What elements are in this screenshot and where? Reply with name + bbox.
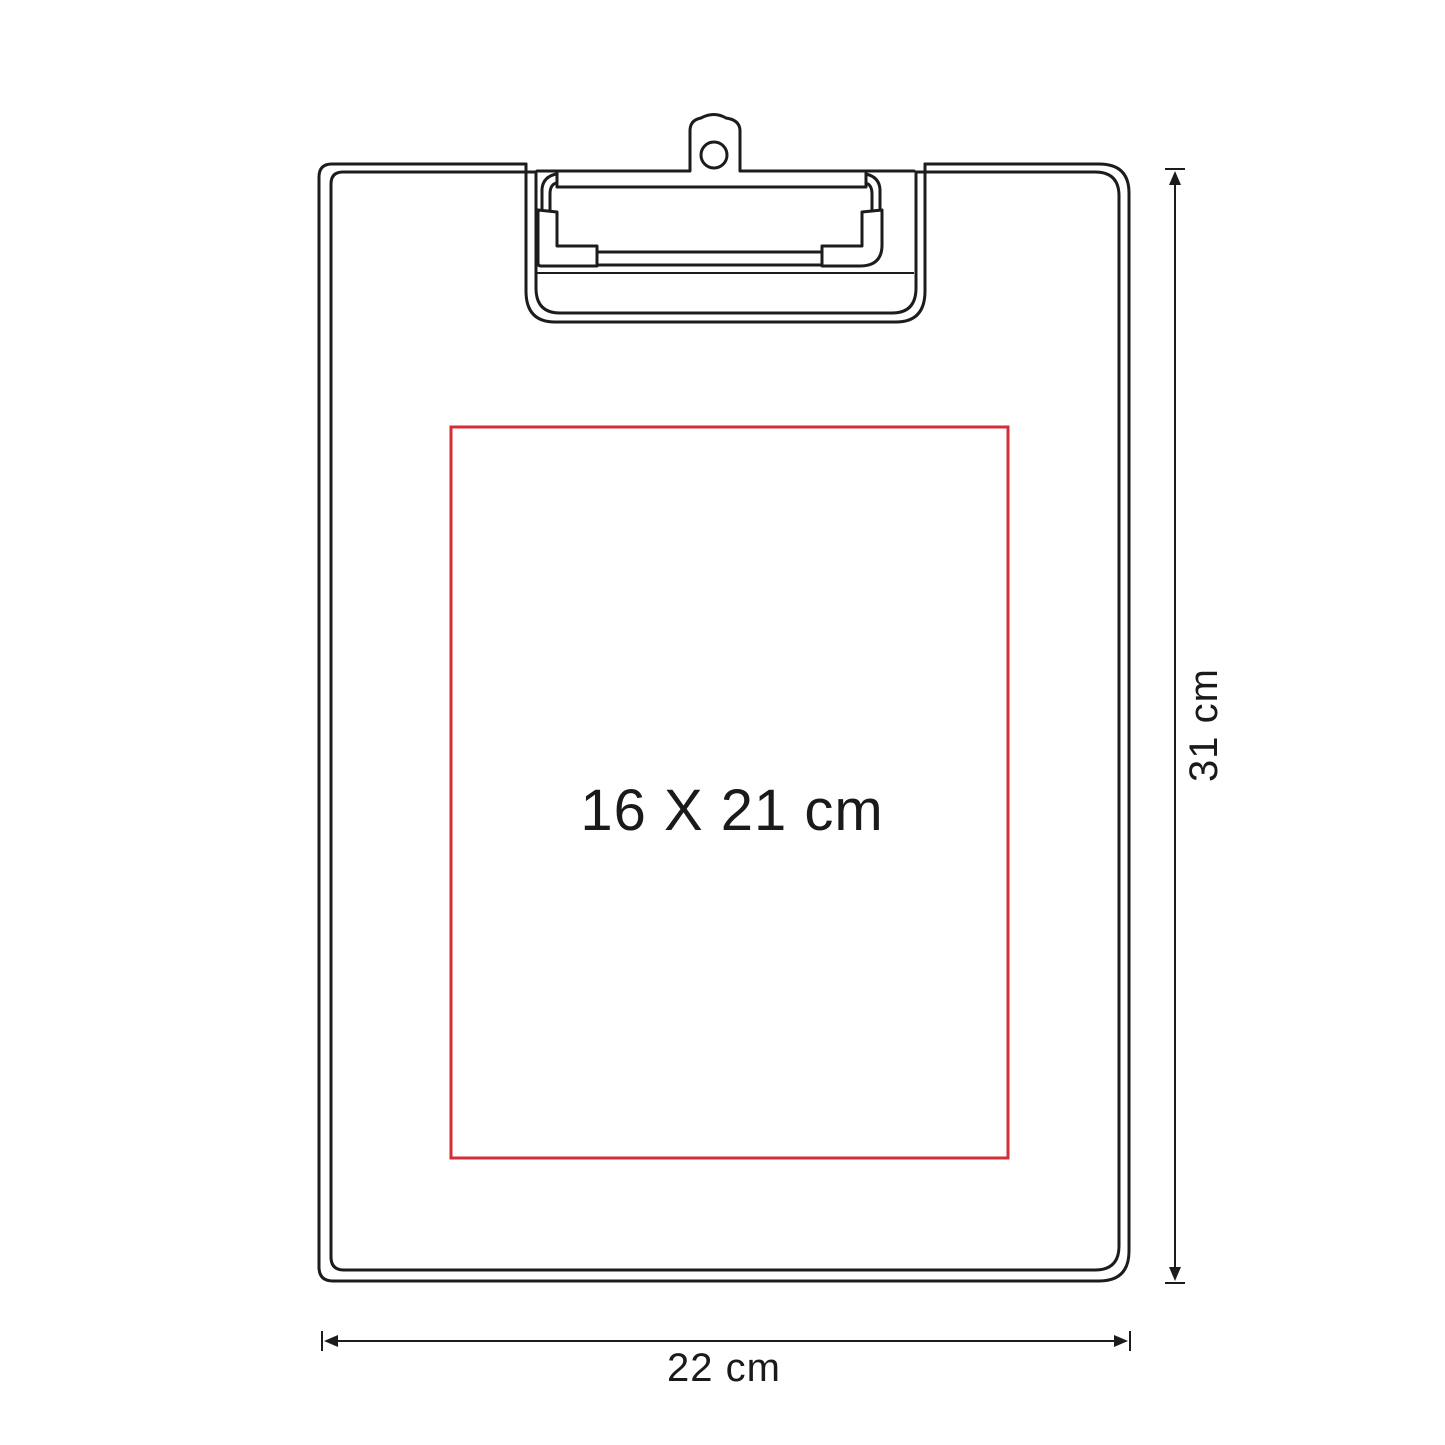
diagram-canvas: 16 X 21 cm 31 cm 22 cm	[0, 0, 1445, 1445]
print-area: 16 X 21 cm	[451, 427, 1008, 1158]
width-arrow-right-icon	[1114, 1335, 1128, 1347]
height-arrow-down-icon	[1169, 1267, 1181, 1281]
clip-mechanism	[537, 115, 914, 274]
clipboard-dimension-diagram: 16 X 21 cm 31 cm 22 cm	[0, 0, 1445, 1445]
clip-lower-bar	[597, 252, 822, 265]
width-dimension: 22 cm	[322, 1331, 1130, 1390]
height-dimension-label: 31 cm	[1182, 668, 1226, 782]
clip-lever-bracket-right	[822, 210, 882, 266]
clip-lever-bracket-left	[538, 210, 597, 266]
height-dimension: 31 cm	[1165, 169, 1226, 1283]
board-inner-edge	[331, 172, 1119, 1270]
print-area-label: 16 X 21 cm	[580, 778, 883, 843]
clip-spring-wire-left-inner	[550, 183, 556, 210]
board-inner-notch	[536, 172, 916, 313]
clip-hang-hole-icon	[701, 142, 727, 168]
clip-top-plate	[557, 171, 866, 187]
width-dimension-label: 22 cm	[667, 1346, 781, 1390]
height-arrow-up-icon	[1169, 171, 1181, 185]
width-arrow-left-icon	[324, 1335, 338, 1347]
